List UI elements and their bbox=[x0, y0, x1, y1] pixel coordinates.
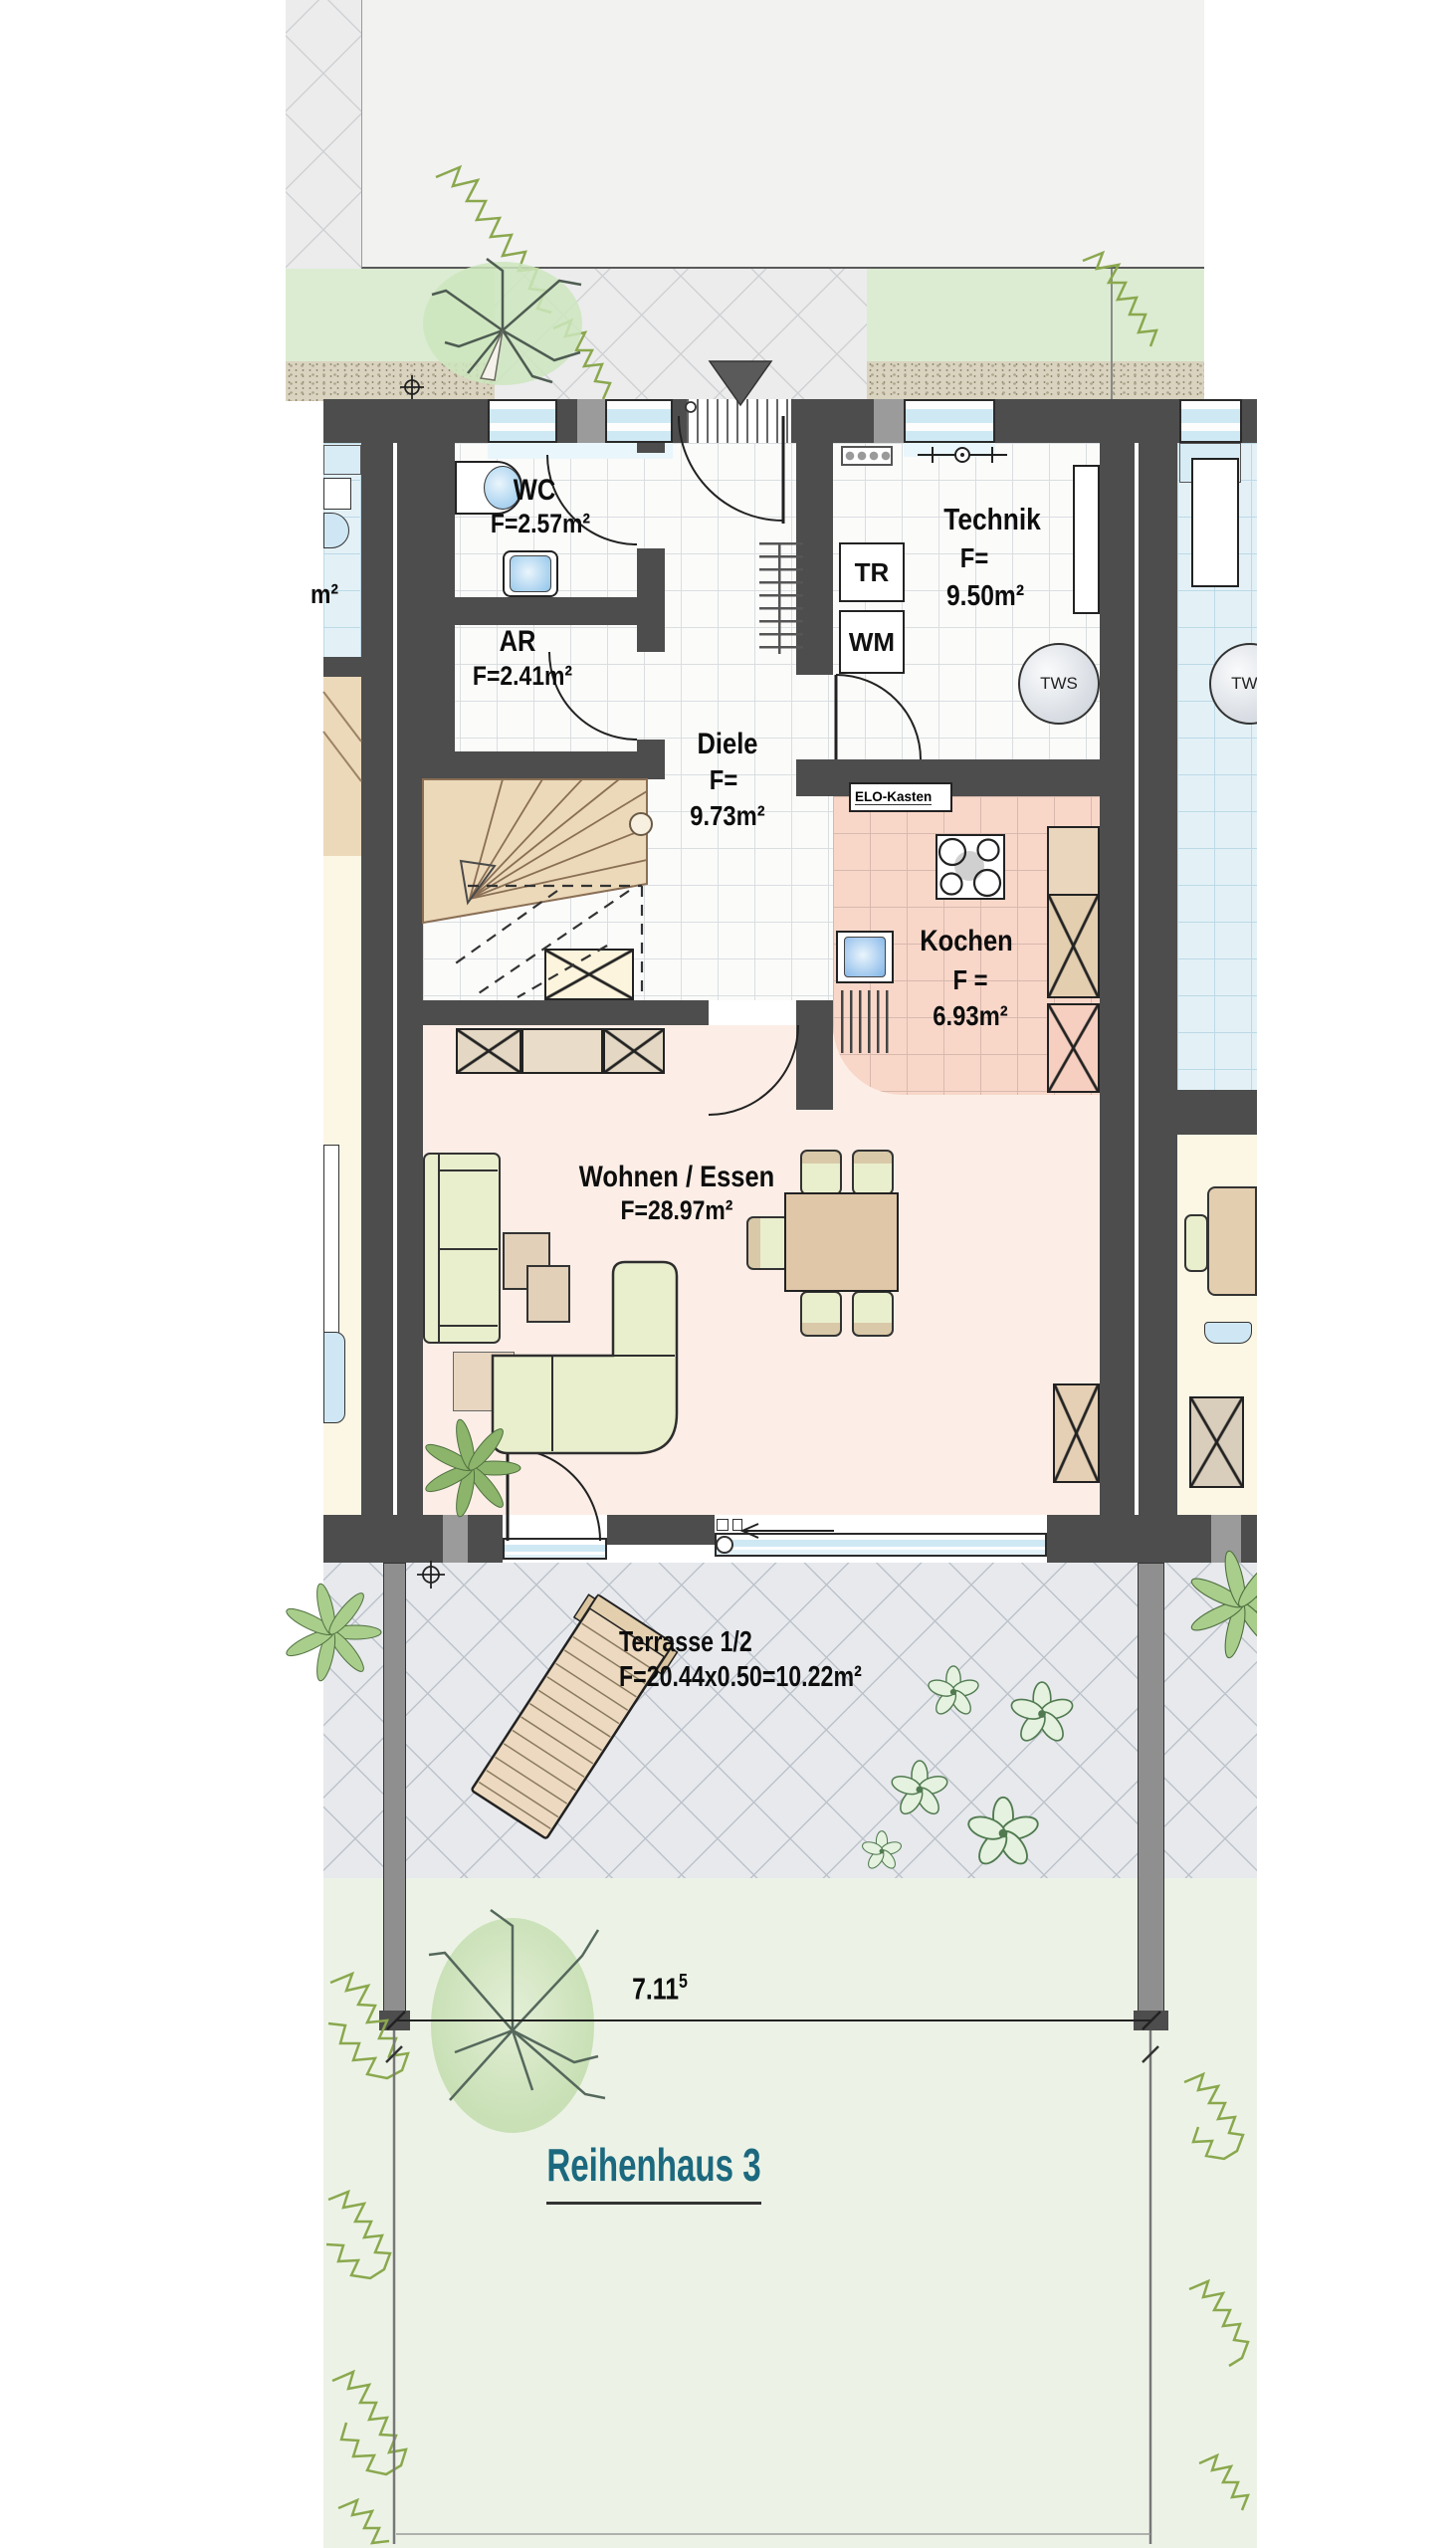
sideboard-box-2 bbox=[521, 1028, 603, 1074]
gravel-strip-right bbox=[867, 361, 1204, 401]
wall-bottom-e bbox=[1100, 1515, 1211, 1563]
sofa-back bbox=[425, 1155, 440, 1342]
room-label-technik: Technik bbox=[908, 504, 1077, 534]
room-label-wohnen: Wohnen / Essen bbox=[550, 1163, 804, 1192]
neighbor-left-sofa bbox=[323, 1332, 345, 1423]
electrical-box-label: ELO-Kasten bbox=[855, 789, 932, 805]
water-heater-circle-left: TWS bbox=[1018, 643, 1100, 725]
dimension-label: 7.115 bbox=[580, 1972, 739, 2004]
window-band-tick-1 bbox=[717, 1519, 728, 1531]
sideboard-box-3 bbox=[603, 1028, 665, 1074]
wall-top-e bbox=[995, 399, 1179, 443]
front-lawn-left bbox=[286, 269, 495, 361]
dishwasher-icon bbox=[841, 990, 891, 1053]
room-area-diele: 9.73m² bbox=[643, 802, 812, 830]
neighbor-left-stair bbox=[323, 677, 361, 856]
wall-insert-4 bbox=[1211, 1515, 1241, 1563]
kitchen-counter bbox=[1047, 826, 1100, 896]
water-heater-left-label: TWS bbox=[1040, 674, 1078, 694]
wc-right-wall-1 bbox=[637, 443, 665, 453]
neighbor-right-sideboard bbox=[1189, 1396, 1244, 1488]
party-wall-left bbox=[361, 399, 423, 1563]
wall-bottom-a bbox=[323, 1515, 443, 1563]
room-label-kochen: Kochen bbox=[882, 927, 1051, 956]
wall-top-c bbox=[673, 399, 687, 443]
wc-window bbox=[488, 399, 557, 443]
neighbor-right-cabinet bbox=[1191, 458, 1239, 587]
canvas-right-margin bbox=[1257, 0, 1456, 2548]
window-band-tick-2 bbox=[732, 1519, 742, 1531]
washer-box: WM bbox=[839, 610, 905, 674]
sofa-armrest-top bbox=[440, 1155, 498, 1171]
paving-strip-top-left bbox=[286, 0, 361, 269]
party-wall-left-seam bbox=[393, 443, 397, 1515]
wc-right-wall-2 bbox=[637, 548, 665, 652]
room-area-wc: F=2.57m² bbox=[456, 511, 625, 537]
property-line-right bbox=[1111, 269, 1113, 401]
room-area-prefix-diele: F= bbox=[639, 766, 808, 794]
terrace-window-band bbox=[715, 1533, 1047, 1557]
room-area-ar: F=2.41m² bbox=[438, 663, 607, 690]
hall-bottom-wall bbox=[423, 1000, 709, 1025]
title-underline bbox=[546, 2202, 761, 2205]
coffee-table-2 bbox=[526, 1265, 570, 1323]
wc-bottom-wall bbox=[455, 597, 637, 625]
ar-bottom-wall bbox=[423, 751, 665, 779]
room-area-technik: 9.50m² bbox=[901, 582, 1070, 611]
gravel-strip-left bbox=[286, 361, 495, 401]
plaza-area bbox=[361, 0, 1204, 269]
neighbor-right-window bbox=[1179, 399, 1242, 443]
wall-insert-1 bbox=[577, 399, 605, 443]
wall-insert-2 bbox=[874, 399, 904, 443]
floor-plan-canvas: TR WM TWS TWS ELO-Kasten bbox=[0, 0, 1456, 2548]
neighbor-right-table bbox=[1207, 1186, 1257, 1296]
sink-basin-icon bbox=[510, 555, 551, 592]
rug bbox=[453, 1352, 515, 1411]
terrace-area-label: F=20.44x0.50=10.22m² bbox=[619, 1663, 862, 1692]
room-label-wc: WC bbox=[450, 476, 619, 506]
neighbor-right-armchair bbox=[1204, 1322, 1252, 1344]
dimension-sup: 5 bbox=[679, 1971, 688, 1993]
dining-chair-bottom-2 bbox=[852, 1291, 894, 1337]
neighbor-left-bath-floor bbox=[323, 443, 361, 657]
page-title: Reihenhaus 3 bbox=[511, 2142, 797, 2188]
room-label-diele: Diele bbox=[643, 730, 812, 759]
dining-chair-top-2 bbox=[852, 1150, 894, 1195]
vent-grille-icon bbox=[841, 446, 893, 466]
room-area-prefix-technik: F= bbox=[890, 544, 1059, 572]
kitchen-sink-basin-icon bbox=[844, 937, 886, 977]
garden-area bbox=[323, 1878, 1257, 2548]
wall-bottom-b bbox=[468, 1515, 503, 1563]
dining-chair-top-1 bbox=[800, 1150, 842, 1195]
living-sideboard bbox=[1053, 1383, 1100, 1483]
neighbor-partial-area-label: m² bbox=[311, 581, 338, 608]
front-lawn-right bbox=[867, 269, 1204, 361]
neighbor-right-wall bbox=[1177, 1090, 1257, 1135]
neighbor-left-fixture bbox=[323, 478, 351, 510]
technik-cabinet bbox=[1073, 465, 1100, 614]
room-area-kochen: 6.93m² bbox=[886, 1002, 1055, 1030]
technik-window-sill bbox=[904, 443, 995, 457]
terrace-label: Terrasse 1/2 bbox=[619, 1628, 752, 1657]
room-label-ar: AR bbox=[433, 627, 602, 657]
wall-insert-3 bbox=[443, 1515, 468, 1563]
neighbor-left-window-bench bbox=[323, 445, 361, 475]
neighbor-left-wall bbox=[323, 657, 361, 677]
sofa-cushion-divider bbox=[440, 1248, 498, 1250]
stair-shaft-box bbox=[544, 949, 634, 1000]
room-area-wohnen: F=28.97m² bbox=[550, 1197, 804, 1224]
hall-window bbox=[605, 399, 673, 443]
terrace-area bbox=[323, 1563, 1257, 1878]
terrace-door-sill bbox=[503, 1538, 607, 1560]
stove-icon bbox=[936, 834, 1005, 900]
technik-window bbox=[904, 399, 995, 443]
sofa-armrest-bottom bbox=[440, 1325, 498, 1342]
garden-wall-left-cap bbox=[379, 2011, 410, 2030]
wall-top-d bbox=[791, 399, 874, 443]
electrical-box: ELO-Kasten bbox=[849, 782, 952, 812]
wall-top-f bbox=[1242, 399, 1257, 443]
washer-label: WM bbox=[849, 627, 895, 658]
garden-wall-right-cap bbox=[1134, 2011, 1168, 2030]
entry-walkway bbox=[495, 269, 867, 401]
room-area-prefix-kochen: F = bbox=[886, 966, 1055, 994]
entry-threshold bbox=[687, 399, 791, 443]
dimension-value: 7.11 bbox=[632, 1971, 679, 2006]
garden-wall-left bbox=[383, 1563, 406, 2028]
wall-bottom-c bbox=[607, 1515, 715, 1545]
wall-top-b bbox=[557, 399, 577, 443]
sideboard-box-1 bbox=[456, 1028, 521, 1074]
wall-bottom-d bbox=[1047, 1515, 1100, 1563]
neighbor-right-chair bbox=[1184, 1214, 1208, 1272]
garden-wall-right bbox=[1138, 1563, 1164, 2028]
party-wall-right-seam bbox=[1135, 443, 1139, 1515]
party-wall-right bbox=[1100, 399, 1177, 1563]
sofa-two-seat bbox=[423, 1153, 501, 1344]
diele-living-pillar bbox=[796, 1000, 833, 1110]
dryer-label: TR bbox=[855, 557, 890, 588]
upper-stair-icon bbox=[759, 542, 803, 654]
wall-bottom-f bbox=[1241, 1515, 1257, 1563]
wall-top-a bbox=[323, 399, 488, 443]
dining-chair-bottom-1 bbox=[800, 1291, 842, 1337]
